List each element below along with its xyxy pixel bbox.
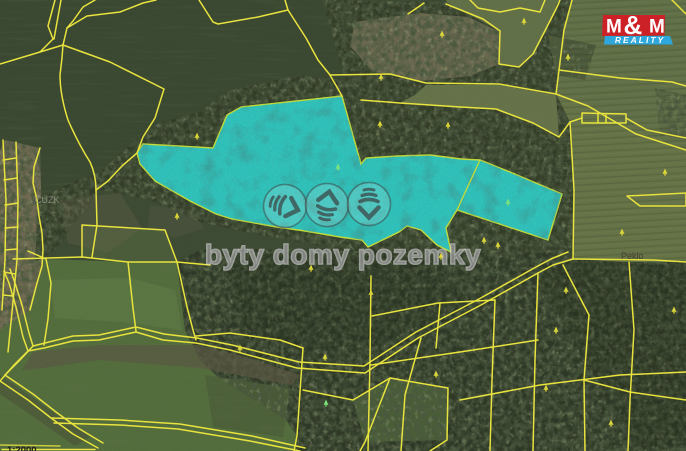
svg-text:Peklo: Peklo <box>621 251 644 261</box>
svg-text:1:2000: 1:2000 <box>7 445 37 451</box>
svg-text:HOLDING: HOLDING <box>661 21 665 33</box>
svg-text:REALITY: REALITY <box>615 35 665 45</box>
svg-text:ČÚZK: ČÚZK <box>35 195 60 205</box>
svg-text:byty domy pozemky: byty domy pozemky <box>205 239 481 270</box>
